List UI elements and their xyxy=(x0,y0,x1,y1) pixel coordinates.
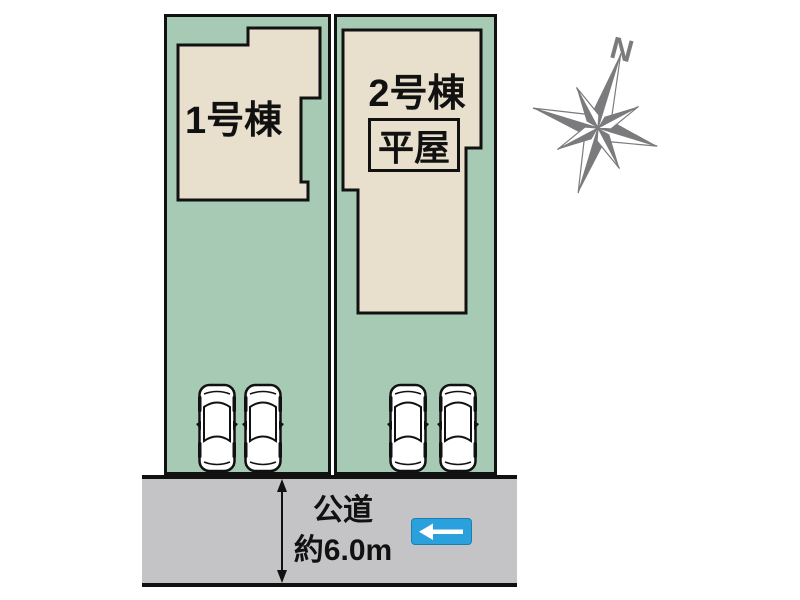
single-story-badge: 平屋 xyxy=(368,118,460,172)
road-label: 公道 約6.0m xyxy=(287,491,399,571)
public-road: 公道 約6.0m xyxy=(142,475,517,587)
road-name: 公道 xyxy=(287,491,399,531)
lot-2-label: 2号棟 xyxy=(347,74,487,116)
car-top-view-icon xyxy=(436,383,480,473)
lot-1: 1号棟 xyxy=(164,14,331,475)
car-top-view-icon xyxy=(386,383,430,473)
road-width: 約6.0m xyxy=(287,531,399,571)
compass-rose-icon: N xyxy=(515,15,675,210)
single-story-badge-text: 平屋 xyxy=(378,119,450,171)
left-arrow-road-sign-icon xyxy=(411,518,472,545)
compass-north-label: N xyxy=(607,30,638,70)
lot-2: 2号棟 平屋 xyxy=(334,14,497,475)
car-top-view-icon xyxy=(241,383,285,473)
car-top-view-icon xyxy=(195,383,239,473)
lot-1-label: 1号棟 xyxy=(185,101,282,143)
